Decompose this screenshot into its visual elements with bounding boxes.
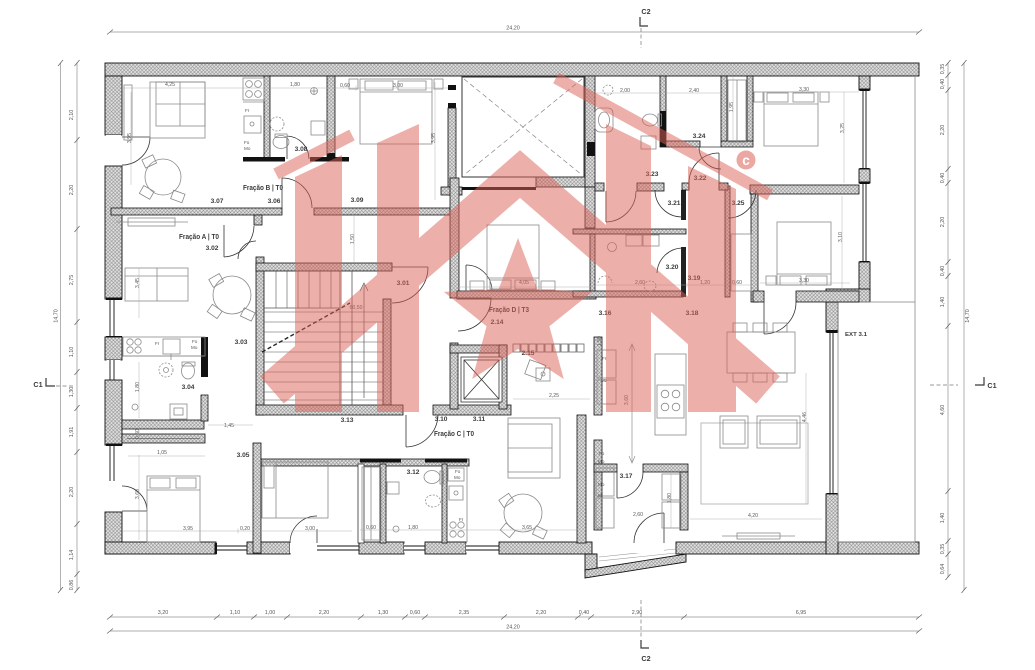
svg-text:3.04: 3.04 <box>182 384 195 391</box>
svg-text:C1: C1 <box>33 380 42 389</box>
svg-text:1,10: 1,10 <box>69 347 75 358</box>
svg-text:3.24: 3.24 <box>693 133 706 140</box>
svg-text:0,64: 0,64 <box>940 564 946 575</box>
svg-text:3.21: 3.21 <box>668 200 681 207</box>
svg-text:c: c <box>742 153 750 168</box>
svg-text:2,35: 2,35 <box>459 610 470 616</box>
svg-text:3.06: 3.06 <box>268 198 281 205</box>
svg-text:1,80: 1,80 <box>135 382 141 392</box>
svg-text:0,35: 0,35 <box>940 64 946 75</box>
svg-text:3.09: 3.09 <box>351 197 364 204</box>
svg-text:3.12: 3.12 <box>407 469 420 476</box>
svg-text:2,75: 2,75 <box>69 275 75 286</box>
svg-text:1,80: 1,80 <box>667 493 673 503</box>
svg-text:0,40: 0,40 <box>940 266 946 277</box>
svg-text:3.13: 3.13 <box>341 417 354 424</box>
svg-text:6,95: 6,95 <box>796 610 807 616</box>
svg-text:0,86: 0,86 <box>69 580 75 591</box>
svg-text:2,10: 2,10 <box>69 110 75 121</box>
svg-text:3.20: 3.20 <box>666 264 679 271</box>
svg-text:C2: C2 <box>641 7 650 16</box>
svg-text:Fr: Fr <box>155 341 160 346</box>
svg-text:3.05: 3.05 <box>237 452 250 459</box>
svg-text:14,70: 14,70 <box>965 309 971 323</box>
svg-text:Fo: Fo <box>599 451 605 456</box>
svg-text:EXT 3.1: EXT 3.1 <box>845 332 867 338</box>
svg-text:14,70: 14,70 <box>54 309 60 323</box>
svg-text:2,25: 2,25 <box>549 393 559 399</box>
svg-text:0,40: 0,40 <box>940 79 946 90</box>
svg-text:C1: C1 <box>987 381 996 390</box>
svg-text:2,20: 2,20 <box>319 610 330 616</box>
svg-text:1,10: 1,10 <box>230 610 241 616</box>
svg-text:Mo: Mo <box>454 475 461 480</box>
svg-text:4,20: 4,20 <box>748 513 758 519</box>
svg-text:3,10: 3,10 <box>838 232 844 242</box>
svg-text:2,20: 2,20 <box>940 217 946 228</box>
svg-text:Mo: Mo <box>244 146 251 151</box>
svg-text:Fração B | T0: Fração B | T0 <box>243 185 283 192</box>
svg-text:3,60: 3,60 <box>135 489 141 499</box>
svg-text:0,40: 0,40 <box>940 173 946 184</box>
svg-text:2,20: 2,20 <box>940 125 946 136</box>
svg-text:1,30: 1,30 <box>378 610 389 616</box>
svg-text:3.03: 3.03 <box>235 339 248 346</box>
svg-text:Fr: Fr <box>459 517 464 522</box>
svg-text:Fr: Fr <box>245 108 250 113</box>
svg-text:Fração C | T0: Fração C | T0 <box>434 431 474 438</box>
svg-text:2,20: 2,20 <box>69 487 75 498</box>
svg-text:24,20: 24,20 <box>506 625 520 631</box>
svg-text:1,05: 1,05 <box>157 450 167 456</box>
svg-text:3,20: 3,20 <box>158 610 169 616</box>
svg-text:Fo: Fo <box>244 140 250 145</box>
svg-text:3.07: 3.07 <box>211 198 224 205</box>
svg-text:4,25: 4,25 <box>165 82 175 88</box>
svg-text:Mo: Mo <box>191 345 198 350</box>
svg-text:3,95: 3,95 <box>431 133 437 143</box>
svg-text:0,35: 0,35 <box>940 544 946 555</box>
svg-text:0,60: 0,60 <box>410 610 421 616</box>
svg-text:1,40: 1,40 <box>940 513 946 524</box>
svg-text:Fo: Fo <box>192 339 198 344</box>
svg-text:1,40: 1,40 <box>940 297 946 308</box>
svg-text:0,40: 0,40 <box>579 610 590 616</box>
svg-text:1,80: 1,80 <box>290 82 300 88</box>
svg-text:3.08: 3.08 <box>295 146 308 153</box>
svg-text:0,60: 0,60 <box>135 429 141 439</box>
svg-text:3.17: 3.17 <box>620 473 633 480</box>
svg-text:3.02: 3.02 <box>206 245 219 252</box>
svg-text:2,60: 2,60 <box>633 512 643 518</box>
svg-text:3.11: 3.11 <box>473 416 486 423</box>
svg-text:Fração A | T0: Fração A | T0 <box>179 234 219 241</box>
svg-text:3,95: 3,95 <box>127 133 133 143</box>
svg-text:4,46: 4,46 <box>802 412 808 422</box>
svg-text:1,30: 1,30 <box>69 387 75 398</box>
svg-text:3,25: 3,25 <box>840 123 846 133</box>
svg-text:Fo: Fo <box>455 469 461 474</box>
svg-text:3.10: 3.10 <box>435 416 448 423</box>
svg-text:1,00: 1,00 <box>265 610 276 616</box>
svg-text:1,14: 1,14 <box>69 550 75 561</box>
svg-text:4,60: 4,60 <box>940 405 946 416</box>
svg-text:1,91: 1,91 <box>69 427 75 438</box>
svg-text:24,20: 24,20 <box>506 26 520 32</box>
svg-text:C2: C2 <box>641 654 650 663</box>
svg-text:1,50: 1,50 <box>597 336 603 346</box>
svg-text:Mo: Mo <box>598 459 605 464</box>
svg-text:Mo: Mo <box>598 482 605 487</box>
svg-text:Mi: Mi <box>598 493 603 498</box>
svg-text:3,45: 3,45 <box>135 278 141 288</box>
svg-text:1,50: 1,50 <box>350 234 356 244</box>
svg-text:2,20: 2,20 <box>69 185 75 196</box>
svg-text:1,45: 1,45 <box>224 423 234 429</box>
svg-text:1,95: 1,95 <box>729 102 735 112</box>
svg-text:2,20: 2,20 <box>536 610 547 616</box>
